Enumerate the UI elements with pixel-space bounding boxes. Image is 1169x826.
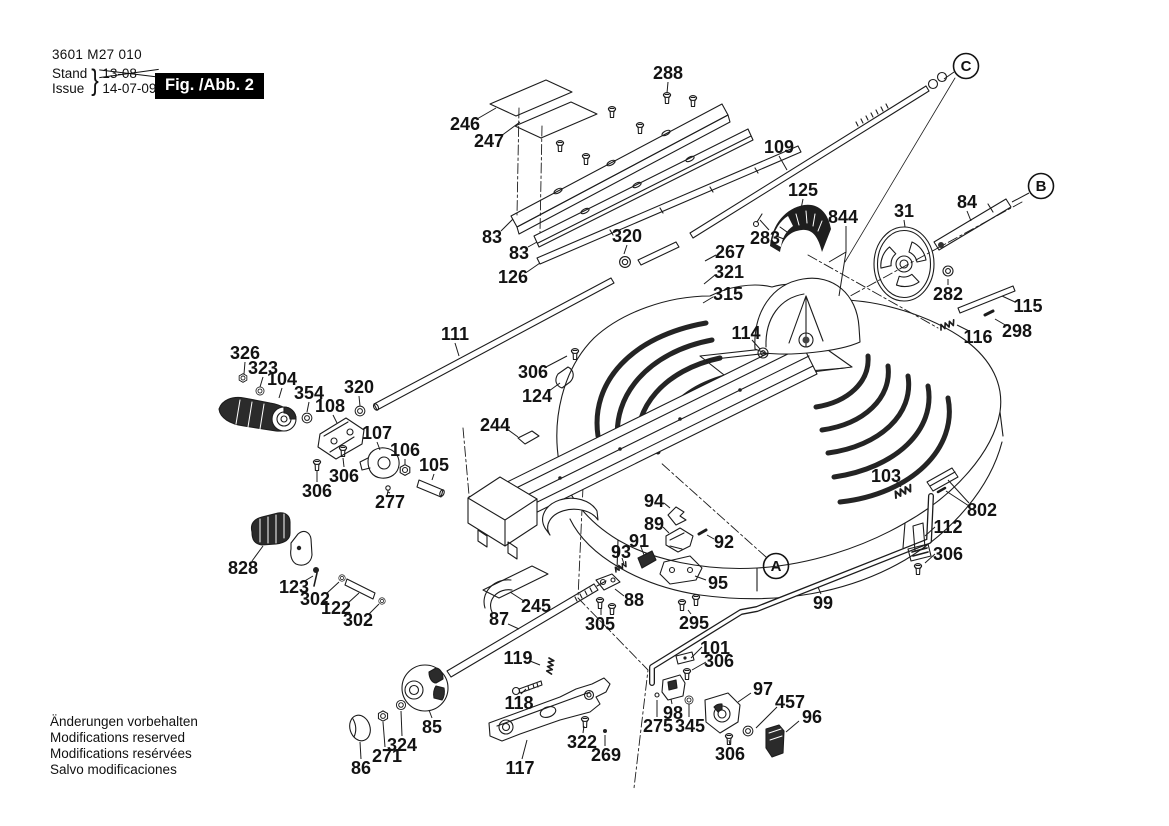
part-number-label: 83	[482, 227, 502, 247]
part-number-label: 109	[764, 137, 794, 157]
part-number-label: 97	[753, 679, 773, 699]
view-letter-text: A	[771, 558, 782, 575]
part-number-label: 99	[813, 593, 833, 613]
nut-106	[400, 465, 410, 476]
part-number-label: 306	[715, 744, 745, 764]
part-number-label: 267	[715, 242, 745, 262]
rod-111	[374, 278, 614, 410]
part-number-label: 844	[828, 207, 858, 227]
part-number-label: 112	[933, 517, 962, 537]
exploded-view-canvas: 2882462478383126320109125844283267321315…	[0, 0, 1169, 826]
part-number-label: 117	[505, 758, 534, 778]
pin-122	[345, 579, 375, 599]
clamp-124	[556, 349, 579, 388]
part-number-label: 271	[372, 746, 402, 766]
part-number-label: 306	[518, 362, 548, 382]
bushing-282	[943, 266, 953, 276]
bracket-94	[668, 507, 686, 525]
leader-line	[1012, 193, 1029, 202]
washer-320	[355, 406, 365, 416]
fence-screw	[608, 107, 615, 118]
part-number-label: 87	[489, 609, 509, 629]
leader-line	[703, 297, 713, 303]
part-number-label: 315	[713, 284, 743, 304]
bracket-97	[705, 693, 740, 733]
leader-line	[546, 356, 567, 367]
view-letter-text: B	[1036, 178, 1047, 195]
part-number-label: 247	[474, 131, 504, 151]
fence-plate-247	[515, 102, 597, 138]
fence-screw	[556, 141, 563, 152]
part-number-label: 244	[480, 415, 510, 435]
part-number-label: 93	[611, 542, 631, 562]
part-number-label: 118	[504, 693, 533, 713]
part-number-label: 306	[933, 544, 963, 564]
screw-306	[313, 460, 320, 471]
leader-line	[756, 707, 777, 728]
leader-line	[307, 402, 309, 412]
part-number-label: 111	[441, 324, 469, 344]
spring-119	[546, 658, 554, 674]
part-number-label: 306	[704, 651, 734, 671]
fence-screw	[636, 123, 643, 134]
part-number-label: 802	[967, 500, 997, 520]
leader-line	[279, 388, 282, 398]
leader-line	[244, 362, 245, 374]
screw-295	[678, 600, 685, 611]
part-number-label: 320	[612, 226, 642, 246]
part-number-label: 114	[731, 323, 760, 343]
part-number-label: 320	[344, 377, 374, 397]
leader-line	[624, 245, 627, 254]
washer-345	[685, 696, 693, 704]
leader-line	[707, 535, 714, 539]
part-number-label: 345	[675, 716, 705, 736]
trunnion-dome	[755, 278, 860, 358]
spring-93	[614, 562, 628, 572]
part-number-label: 108	[315, 396, 345, 416]
leader-line	[360, 742, 361, 759]
fence-bar-83b	[534, 129, 753, 247]
fence-screw	[582, 154, 589, 165]
part-number-label: 321	[714, 262, 744, 282]
part-number-label: 306	[302, 481, 332, 501]
rods	[372, 73, 946, 684]
washer-323	[256, 387, 264, 395]
parts-diagram-page: 3601 M27 010 Stand Issue } 13-08 14-07-0…	[0, 0, 1169, 826]
plunger-91	[638, 551, 656, 568]
slide-knob-cluster	[346, 658, 610, 743]
fence-screw	[689, 96, 696, 107]
plate-244	[518, 431, 539, 444]
part-number-label: 83	[509, 243, 529, 263]
part-number-label: 94	[644, 491, 664, 511]
washer-457	[743, 726, 753, 736]
washer-302	[339, 575, 345, 581]
part-number-label: 277	[375, 492, 405, 512]
latch-828	[291, 532, 312, 566]
part-number-label: 105	[419, 455, 449, 475]
washer-302	[379, 598, 385, 604]
part-number-label: 125	[788, 180, 818, 200]
part-number-label: 88	[624, 590, 644, 610]
part-number-label: 245	[521, 596, 551, 616]
screw-322	[581, 717, 588, 728]
screw-305	[608, 604, 615, 615]
bushing-c	[929, 80, 938, 89]
leader-line	[522, 740, 527, 759]
leader-line	[508, 624, 519, 629]
leader-line	[904, 220, 905, 227]
part-number-label: 104	[267, 369, 297, 389]
part-number-label: 457	[775, 692, 805, 712]
assembly-axis-line	[845, 78, 955, 262]
leader-line	[501, 219, 513, 231]
screw-305	[596, 598, 603, 609]
part-number-label: 31	[894, 201, 914, 221]
bracket-95	[660, 556, 702, 584]
leader-line	[786, 721, 799, 732]
part-number-label: 115	[1013, 296, 1042, 316]
rod-115	[958, 286, 1015, 313]
cap-86	[346, 713, 373, 744]
part-number-label: 86	[351, 758, 371, 778]
part-number-label: 106	[390, 440, 420, 460]
washer-354	[302, 413, 312, 423]
pin-298	[985, 311, 993, 315]
washer-320	[620, 257, 631, 268]
part-number-label: 288	[653, 63, 683, 83]
part-number-label: 103	[871, 466, 901, 486]
nut-271	[378, 711, 387, 721]
handwheel-31	[874, 227, 934, 301]
pin-275	[655, 693, 659, 697]
front-pivot-arc	[543, 498, 598, 535]
leader-line	[260, 377, 263, 387]
leader-line	[527, 263, 540, 272]
leader-line	[829, 226, 846, 262]
part-number-label: 302	[343, 610, 373, 630]
part-number-label: 107	[362, 423, 392, 443]
leader-line	[401, 711, 402, 736]
pin-269	[603, 729, 607, 733]
part-number-label: 306	[329, 466, 359, 486]
part-number-label: 124	[522, 386, 552, 406]
fence-bar-83a	[511, 104, 728, 227]
part-number-label: 84	[957, 192, 977, 212]
leader-line	[383, 722, 385, 747]
part-number-label: 282	[933, 284, 963, 304]
part-number-label: 119	[503, 648, 532, 668]
part-number-label: 275	[643, 716, 673, 736]
nut-326	[239, 374, 247, 383]
leader-line	[333, 415, 337, 423]
part-number-label: 85	[422, 717, 442, 737]
part-number-label: 269	[591, 745, 621, 765]
pin-277	[386, 486, 390, 490]
leader-line	[738, 693, 751, 702]
screw-288	[663, 93, 670, 104]
leader-line	[667, 82, 668, 93]
leader-line	[664, 503, 670, 508]
part-number-label: 96	[802, 707, 822, 727]
part-number-label: 305	[585, 614, 615, 634]
pin-123	[313, 567, 319, 573]
screw-306	[683, 669, 690, 680]
leader-line	[455, 343, 459, 356]
washer-324	[396, 700, 405, 709]
leader-line	[944, 72, 954, 79]
screw-306	[725, 734, 732, 745]
pin-92	[699, 530, 706, 534]
part-number-label: 92	[714, 532, 734, 552]
part-number-label: 298	[1002, 321, 1032, 341]
screw-295	[692, 595, 699, 606]
knob-96	[766, 725, 784, 757]
part-number-label: 91	[629, 531, 649, 551]
fence-plate-246	[490, 80, 572, 116]
part-number-label: 828	[228, 558, 258, 578]
part-number-label: 116	[963, 327, 992, 347]
part-number-label: 295	[679, 613, 709, 633]
part-number-label: 126	[498, 267, 528, 287]
leader-line	[528, 242, 537, 247]
leader-line	[967, 211, 971, 221]
lever-88	[596, 574, 620, 590]
leader-line	[359, 396, 360, 406]
leader-line	[615, 589, 624, 596]
view-letter-text: C	[961, 58, 972, 75]
screw-306	[914, 564, 921, 575]
part-number-label: 95	[708, 573, 728, 593]
part-number-label: 283	[750, 228, 780, 248]
